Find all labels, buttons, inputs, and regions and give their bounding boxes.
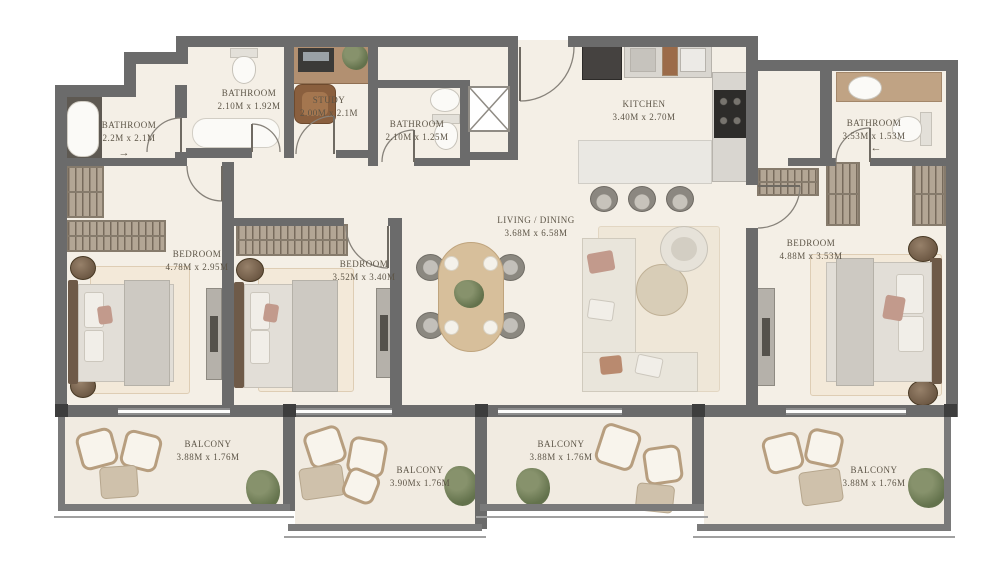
accent-pillow [263,303,280,323]
room-dims: 3.88M x 1.76M [529,451,592,464]
wall [222,162,234,410]
place-setting [444,256,459,271]
room-label-bathroom-1: BATHROOM 2.2M x 2.1M [102,119,157,145]
room-dims: 4.78M x 2.95M [165,261,228,274]
room-name: BALCONY [842,464,905,477]
balcony-table [298,463,346,501]
balcony-chair [642,444,685,487]
wall [186,148,252,158]
room-label-study: STUDY 2.00M x 2.1M [300,94,358,120]
room-label-balcony-2: BALCONY 3.90Mx 1.76M [390,464,450,490]
wall [374,80,470,88]
sofa-pillow [587,298,616,321]
room-name: KITCHEN [612,98,675,111]
room-dims: 3.52M x 3.40M [332,271,395,284]
place-setting [483,320,498,335]
kitchen-appliance [680,48,706,72]
side-table [236,258,264,282]
wardrobe [66,166,104,218]
balcony-divider [692,405,704,511]
room-name: BATHROOM [102,119,157,132]
bed-blanket [292,280,338,392]
column [283,404,296,417]
armchair [660,226,708,272]
room-dims: 2.00M x 2.1M [300,107,358,120]
nightstand [70,256,96,280]
balcony-rail [58,504,290,511]
room-name: BEDROOM [779,237,842,250]
room-label-balcony-1: BALCONY 3.88M x 1.76M [176,438,239,464]
kitchen-sink-unit [630,48,656,72]
room-dims: 3.40M x 2.70M [612,111,675,124]
room-label-bathroom-2: BATHROOM 2.10M x 1.92M [217,87,280,113]
room-label-balcony-4: BALCONY 3.88M x 1.76M [842,464,905,490]
kitchen-island [578,140,712,184]
balcony-rail [288,524,482,531]
arrow-right-icon: → [119,147,130,159]
balcony-table [798,467,844,507]
bed-headboard [234,282,244,388]
tv-unit [206,288,222,380]
shaft-box [468,86,510,132]
wardrobe [912,162,946,226]
closet [757,168,819,196]
place-setting [444,320,459,335]
bed-pillow [84,330,104,362]
wall [368,36,378,166]
wall [746,228,758,405]
bathtub [67,101,99,157]
balcony-divider [283,405,295,511]
sofa-pillow [599,355,623,375]
room-dims: 2.10M x 1.92M [217,100,280,113]
tv-unit [757,288,775,386]
toilet [232,56,256,84]
table-centerpiece [454,280,484,308]
bar-stool [628,186,656,212]
column [692,404,705,417]
sliding-door [786,408,906,415]
column [944,404,957,417]
place-setting [483,256,498,271]
balcony-rail-outer [284,536,486,538]
room-dims: 2.10M x 1.25M [385,131,448,144]
room-name: STUDY [300,94,358,107]
sliding-door [498,408,622,415]
room-name: BATHROOM [217,87,280,100]
room-name: BALCONY [176,438,239,451]
wall-left [55,85,67,417]
desk-plant [342,44,368,70]
cooktop [714,90,746,138]
room-name: BATHROOM [842,117,905,130]
wall [460,152,518,160]
bathtub [192,118,280,148]
fridge [582,44,622,80]
wall [820,60,832,165]
floor-plan: BATHROOM 2.2M x 2.1M BATHROOM 2.10M x 1.… [0,0,1000,561]
cutting-board [662,46,678,76]
wall [336,150,378,158]
room-label-balcony-3: BALCONY 3.88M x 1.76M [529,438,592,464]
bed-blanket [124,280,170,386]
bed-pillow [250,330,270,364]
balcony-plant [908,468,946,508]
room-name: BATHROOM [385,118,448,131]
laptop [298,48,334,72]
bed-headboard [68,280,78,384]
wardrobe [826,162,860,226]
balcony-rail [944,417,951,527]
balcony-rail-outer [54,516,294,518]
wall [175,85,187,118]
column [55,404,68,417]
wardrobe [66,220,166,252]
wardrobe [236,224,348,256]
room-label-bathroom-3: BATHROOM 2.10M x 1.25M [385,118,448,144]
wall [870,158,958,166]
balcony-rail-outer [693,536,955,538]
arrow-left-icon: ← [871,142,882,154]
wall [746,47,758,185]
room-dims: 3.90Mx 1.76M [390,477,450,490]
room-label-bedroom-3: BEDROOM 4.88M x 3.53M [779,237,842,263]
wall-top [176,36,512,47]
balcony-plant [516,468,550,506]
room-label-bathroom-4: BATHROOM 3.53M x 1.53M [842,117,905,143]
accent-pillow [882,294,906,321]
balcony-rail [58,417,65,509]
room-name: BEDROOM [332,258,395,271]
wall-top [568,36,758,47]
wall [55,85,135,97]
balcony-table [99,465,139,500]
column [475,404,488,417]
wall-top-right [746,60,958,71]
bar-stool [590,186,618,212]
wall [284,36,294,158]
balcony-rail [480,504,704,511]
room-name: BEDROOM [165,248,228,261]
accent-pillow [97,305,113,325]
room-dims: 2.2M x 2.1M [102,132,157,145]
room-label-bedroom-1: BEDROOM 4.78M x 2.95M [165,248,228,274]
sliding-door [296,408,392,415]
balcony-rail [697,524,951,531]
room-dims: 4.88M x 3.53M [779,250,842,263]
wall-right [946,60,958,417]
room-label-bedroom-2: BEDROOM 3.52M x 3.40M [332,258,395,284]
room-label-living-dining: LIVING / DINING 3.68M x 6.58M [497,214,574,240]
room-dims: 3.88M x 1.76M [176,451,239,464]
room-name: LIVING / DINING [497,214,574,227]
room-dims: 3.68M x 6.58M [497,227,574,240]
sink [430,88,460,112]
balcony-rail-outer [476,516,708,518]
bed-blanket [836,258,874,386]
wall [222,218,344,226]
sliding-door [118,408,230,415]
room-label-kitchen: KITCHEN 3.40M x 2.70M [612,98,675,124]
bar-stool [666,186,694,212]
sink [848,76,882,100]
room-name: BALCONY [529,438,592,451]
room-name: BALCONY [390,464,450,477]
bed-pillow [898,316,924,352]
wall [55,158,187,166]
room-dims: 3.88M x 1.76M [842,477,905,490]
wall [788,158,836,166]
wall [390,218,402,410]
